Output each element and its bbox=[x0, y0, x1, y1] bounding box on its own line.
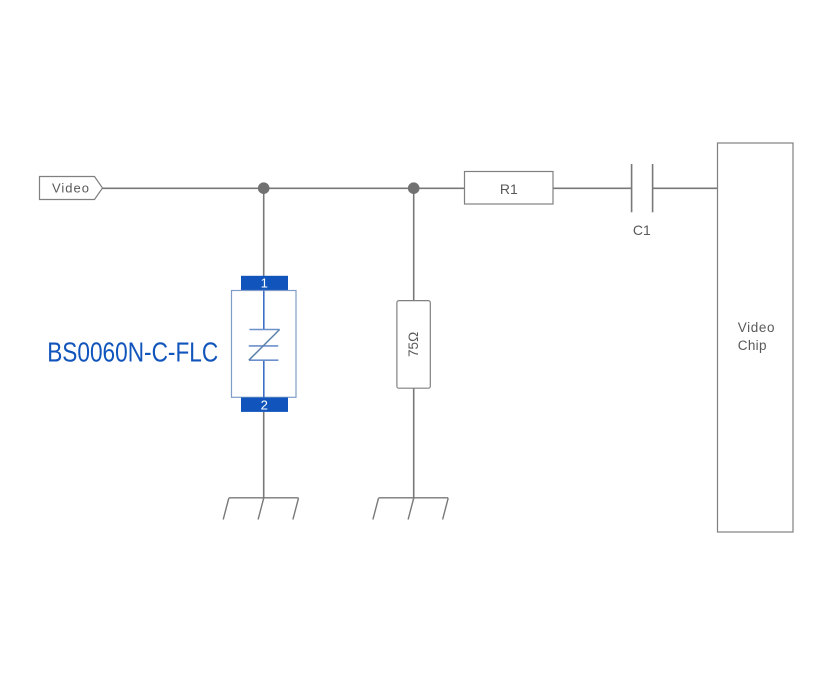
svg-text:BS0060N-C-FLC: BS0060N-C-FLC bbox=[47, 337, 218, 368]
svg-text:Video: Video bbox=[738, 320, 775, 335]
svg-text:2: 2 bbox=[261, 398, 268, 413]
svg-text:75Ω: 75Ω bbox=[406, 332, 421, 357]
svg-text:Chip: Chip bbox=[738, 338, 767, 353]
svg-text:1: 1 bbox=[261, 276, 268, 291]
svg-text:Video: Video bbox=[52, 181, 90, 196]
svg-text:C1: C1 bbox=[633, 222, 651, 238]
svg-text:R1: R1 bbox=[500, 181, 518, 197]
